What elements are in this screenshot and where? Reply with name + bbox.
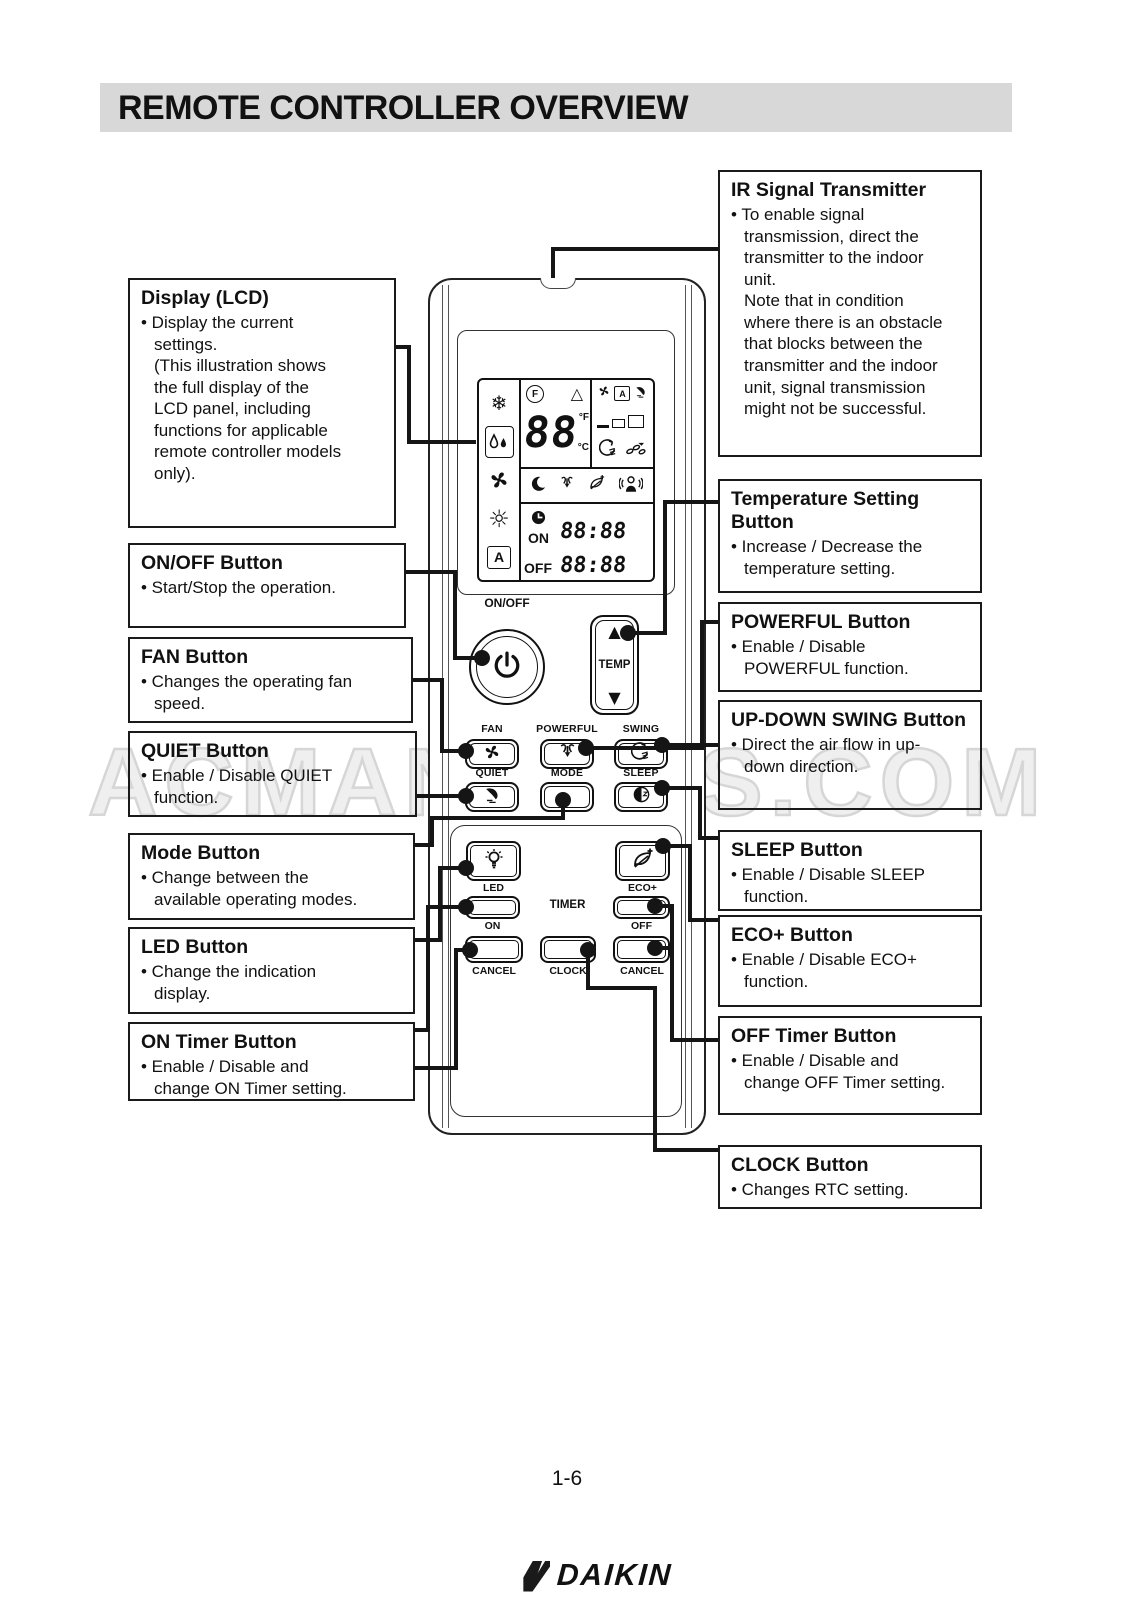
power-button[interactable]	[469, 629, 545, 705]
callout-temperature-setting-button: Temperature Setting Button • Increase / …	[718, 479, 982, 593]
callout-title: OFF Timer Button	[731, 1025, 970, 1048]
auto-fan-indicator-icon: A	[614, 386, 630, 401]
lcd-fan-section: A	[592, 380, 653, 467]
lcd-mode-column: ❄ ☼ A	[479, 380, 521, 580]
callout-title: LED Button	[141, 936, 403, 959]
sleep-moon-icon	[632, 785, 651, 809]
callout-body: • Enable / Disable SLEEP function.	[731, 864, 970, 907]
clock-button[interactable]	[540, 936, 596, 963]
callout-body: • To enable signal transmission, direct …	[731, 204, 970, 420]
led-button-caption: LED	[466, 882, 521, 894]
fahrenheit-unit: °F	[579, 412, 589, 423]
lcd-temperature-value: 88	[521, 408, 580, 458]
swing-icon	[631, 742, 651, 767]
callout-body: • Display the current settings. (This il…	[141, 312, 384, 485]
quiet-button-label: QUIET	[450, 767, 534, 779]
airflow-leaves-indicator-icon	[625, 441, 646, 461]
lower-button-compartment: LED ECO+ TIMER ON OFF CANCEL CLOCK CANCE…	[450, 825, 682, 1117]
callout-sleep-button: SLEEP Button • Enable / Disable SLEEP fu…	[718, 830, 982, 911]
fan-indicator-icon	[597, 384, 611, 403]
fan-mode-icon	[487, 463, 511, 497]
celsius-unit: °C	[578, 442, 589, 453]
temp-rocker: ▲ TEMP ▼	[590, 615, 639, 715]
sleep-button[interactable]	[614, 782, 668, 812]
lcd-function-row	[521, 469, 653, 504]
callout-powerful-button: POWERFUL Button • Enable / Disable POWER…	[718, 602, 982, 692]
powerful-button[interactable]	[540, 739, 594, 769]
comfort-indicator-icon	[619, 474, 643, 498]
callout-title: CLOCK Button	[731, 1154, 970, 1177]
callout-title: FAN Button	[141, 646, 401, 669]
fan-speed-bars	[595, 415, 650, 428]
ir-transmitter-notch	[540, 278, 576, 289]
callout-title: Temperature Setting Button	[731, 488, 970, 534]
callout-on-off-button: ON/OFF Button • Start/Stop the operation…	[128, 543, 406, 628]
powerful-indicator-icon	[559, 475, 575, 496]
lcd-timer-section: ON 88:88 OFF 88:88	[521, 504, 653, 580]
callout-body: • Direct the air flow in up- down direct…	[731, 734, 970, 777]
powerful-indicator-triangle-icon: △	[571, 384, 583, 403]
lcd-on-timer-label: ON	[528, 530, 549, 546]
heat-mode-sun-icon: ☼	[488, 502, 510, 536]
updown-swing-indicator-icon	[599, 439, 618, 463]
lcd-off-timer-label: OFF	[524, 560, 552, 576]
callout-off-timer-button: OFF Timer Button • Enable / Disable and …	[718, 1016, 982, 1115]
eco-plus-button-caption: ECO+	[615, 882, 670, 894]
quiet-button[interactable]	[465, 782, 519, 812]
mode-button[interactable]	[540, 782, 594, 812]
eco-leaf-plus-icon	[631, 847, 655, 876]
cancel-left-caption: CANCEL	[461, 965, 527, 977]
temp-label: TEMP	[599, 659, 631, 671]
lcd-off-timer-time: 88:88	[559, 553, 628, 578]
led-bulb-icon	[482, 847, 506, 876]
callout-body: • Enable / Disable POWERFUL function.	[731, 636, 970, 679]
timer-off-caption: OFF	[613, 920, 670, 932]
lcd-display: ❄ ☼ A F △ 88 °F °C	[477, 378, 655, 582]
callout-mode-button: Mode Button • Change between the availab…	[128, 833, 415, 920]
mode-button-label: MODE	[525, 767, 609, 779]
page-title: REMOTE CONTROLLER OVERVIEW	[100, 83, 1012, 128]
powerful-button-label: POWERFUL	[525, 723, 609, 735]
lcd-on-timer-time: 88:88	[559, 519, 628, 544]
timer-on-button[interactable]	[465, 896, 520, 919]
callout-body: • Increase / Decrease the temperature se…	[731, 536, 970, 579]
temp-up-button[interactable]: ▲	[608, 624, 620, 640]
callout-title: ON/OFF Button	[141, 552, 394, 575]
sleep-button-label: SLEEP	[599, 767, 683, 779]
callout-display-lcd: Display (LCD) • Display the current sett…	[128, 278, 396, 528]
callout-fan-button: FAN Button • Changes the operating fan s…	[128, 637, 413, 723]
callout-led-button: LED Button • Change the indication displ…	[128, 927, 415, 1014]
callout-body: • Changes the operating fan speed.	[141, 671, 401, 714]
callout-quiet-button: QUIET Button • Enable / Disable QUIET fu…	[128, 731, 417, 817]
daikin-mark-icon	[523, 1561, 550, 1592]
transmission-indicator-icon: F	[526, 385, 544, 403]
callout-clock-button: CLOCK Button • Changes RTC setting.	[718, 1145, 982, 1209]
callout-body: • Change the indication display.	[141, 961, 403, 1004]
callout-body: • Enable / Disable and change OFF Timer …	[731, 1050, 970, 1093]
temp-down-button[interactable]: ▼	[608, 690, 620, 706]
callout-body: • Changes RTC setting.	[731, 1179, 970, 1201]
callout-title: ON Timer Button	[141, 1031, 403, 1054]
callout-body: • Start/Stop the operation.	[141, 577, 394, 599]
callout-up-down-swing-button: UP-DOWN SWING Button • Direct the air fl…	[718, 700, 982, 810]
callout-title: ECO+ Button	[731, 924, 970, 947]
sleep-indicator-moon-icon	[531, 476, 546, 496]
cancel-left-button[interactable]	[465, 936, 523, 963]
cancel-right-button[interactable]	[613, 936, 670, 963]
power-icon	[492, 650, 522, 685]
callout-on-timer-button: ON Timer Button • Enable / Disable and c…	[128, 1022, 415, 1101]
timer-off-button[interactable]	[613, 896, 670, 919]
manual-page: ACMANUALS.COM REMOTE CONTROLLER OVERVIEW…	[0, 0, 1134, 1603]
powerful-icon	[558, 742, 577, 766]
callout-title: UP-DOWN SWING Button	[731, 709, 970, 732]
swing-button[interactable]	[614, 739, 668, 769]
clock-indicator-icon	[531, 510, 546, 530]
callout-ir-signal-transmitter: IR Signal Transmitter • To enable signal…	[718, 170, 982, 457]
callout-title: POWERFUL Button	[731, 611, 970, 634]
callout-body: • Enable / Disable QUIET function.	[141, 765, 405, 808]
eco-plus-button[interactable]	[615, 841, 670, 881]
callout-title: QUIET Button	[141, 740, 405, 763]
callout-body: • Enable / Disable ECO+ function.	[731, 949, 970, 992]
auto-mode-icon: A	[487, 546, 511, 569]
quiet-icon	[483, 785, 502, 809]
remote-controller: ❄ ☼ A F △ 88 °F °C	[428, 278, 706, 1135]
eco-plus-indicator-icon	[588, 474, 606, 497]
led-button[interactable]	[466, 841, 521, 881]
timer-label: TIMER	[540, 899, 595, 911]
clock-caption: CLOCK	[538, 965, 598, 977]
callout-title: Display (LCD)	[141, 287, 384, 310]
fan-icon	[482, 742, 502, 767]
cancel-right-caption: CANCEL	[609, 965, 675, 977]
callout-title: Mode Button	[141, 842, 403, 865]
page-number: 1-6	[0, 1467, 1134, 1491]
callout-title: IR Signal Transmitter	[731, 179, 970, 202]
cool-mode-snowflake-icon: ❄	[491, 386, 508, 420]
on-off-button-label: ON/OFF	[467, 596, 547, 610]
lcd-temperature-section: F △ 88 °F °C	[521, 380, 592, 467]
quiet-indicator-icon	[634, 384, 648, 403]
dry-mode-drops-icon	[485, 426, 514, 458]
callout-eco-plus-button: ECO+ Button • Enable / Disable ECO+ func…	[718, 915, 982, 1007]
timer-on-caption: ON	[465, 920, 520, 932]
title-bar: REMOTE CONTROLLER OVERVIEW	[100, 83, 1012, 132]
fan-button[interactable]	[465, 739, 519, 769]
brand-logo: DAIKIN	[491, 1559, 705, 1593]
callout-body: • Change between the available operating…	[141, 867, 403, 910]
callout-title: SLEEP Button	[731, 839, 970, 862]
brand-name: DAIKIN	[556, 1559, 674, 1594]
fan-button-label: FAN	[450, 723, 534, 735]
swing-button-label: SWING	[599, 723, 683, 735]
callout-body: • Enable / Disable and change ON Timer s…	[141, 1056, 403, 1099]
